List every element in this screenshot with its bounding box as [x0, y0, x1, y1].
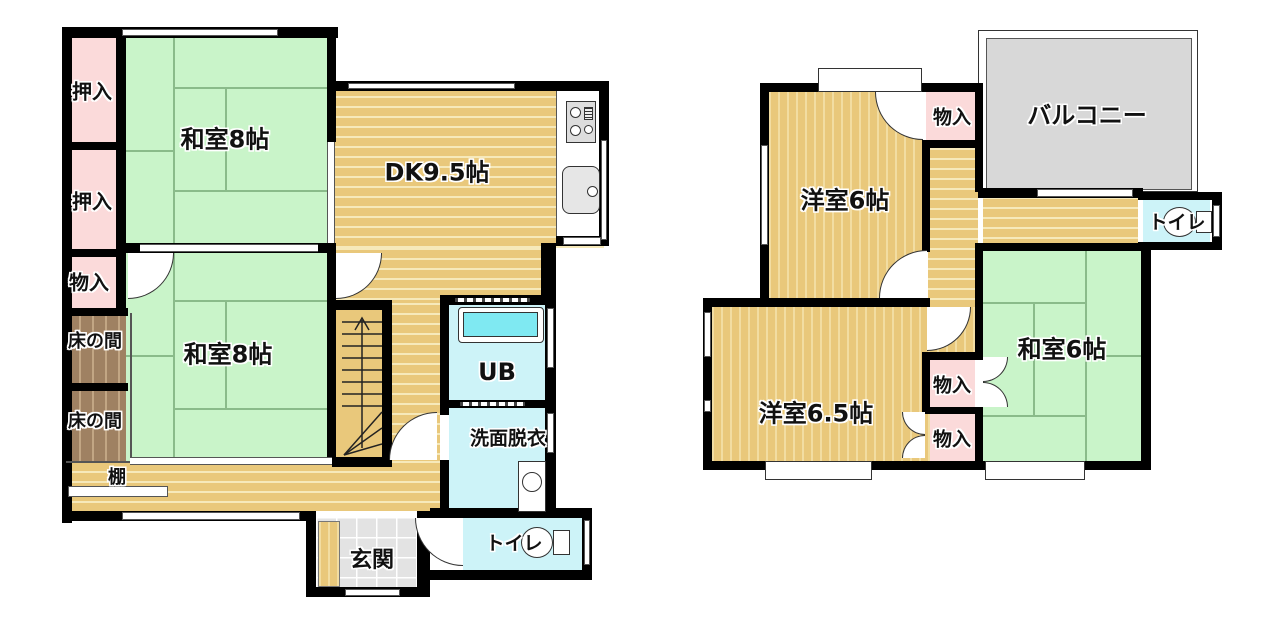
sink-icon	[562, 166, 600, 214]
wall	[116, 27, 126, 313]
stairs-icon	[332, 300, 392, 467]
room-label-monoiri-2f-mid: 物入	[933, 371, 971, 398]
window	[563, 237, 601, 245]
wall	[922, 352, 983, 360]
room-label-yoshitsu65: 洋室6.5帖	[759, 394, 874, 429]
sliding-door	[130, 457, 332, 465]
room-label-toilet-1f: トイレ	[485, 529, 542, 556]
window	[704, 312, 711, 357]
bay-window	[818, 68, 922, 92]
entrance-door-gap	[345, 589, 400, 596]
room-label-senmen: 洗面脱衣	[470, 424, 546, 451]
wall	[703, 298, 930, 307]
window	[547, 308, 554, 368]
wall	[430, 508, 592, 518]
room-label-tokonoma-1: 床の間	[68, 327, 122, 353]
room-label-washitsu6: 和室6帖	[1018, 330, 1107, 365]
room-label-toilet-2f: トイレ	[1148, 208, 1205, 235]
window	[1037, 189, 1133, 197]
floor-plan: 押入 押入 物入 床の間 床の間 棚 和室8帖 和室8帖 DK9.5帖 UB 洗…	[0, 0, 1280, 631]
window	[1213, 205, 1220, 237]
tatami-line	[173, 248, 175, 461]
room-label-tana: 棚	[108, 463, 126, 489]
tatami-line	[173, 408, 332, 410]
room-label-tokonoma-2: 床の間	[68, 407, 122, 433]
bay-window	[985, 461, 1085, 480]
window	[122, 512, 300, 520]
wall	[922, 407, 983, 414]
wall	[922, 352, 930, 414]
wall	[975, 407, 983, 461]
room-label-monoiri-1f: 物入	[69, 267, 109, 296]
wall	[62, 249, 120, 257]
wall	[922, 140, 983, 148]
washing-machine-icon	[518, 461, 546, 512]
room-label-washitsu8-bottom: 和室8帖	[184, 335, 273, 370]
hallway-2f-vertical	[928, 148, 978, 307]
room-label-dk: DK9.5帖	[384, 153, 489, 188]
tatami-line	[173, 33, 175, 248]
sliding-door	[140, 244, 318, 252]
wall	[975, 83, 983, 192]
room-label-balcony: バルコニー	[1027, 96, 1147, 131]
hallway-2f-horizontal	[983, 197, 1138, 243]
room-label-yoshitsu6: 洋室6帖	[801, 181, 890, 216]
wall	[306, 511, 316, 597]
room-label-washitsu8-top: 和室8帖	[181, 120, 270, 155]
tatami-line	[173, 87, 332, 89]
room-label-oshiire-2: 押入	[72, 186, 112, 215]
wall	[418, 570, 592, 580]
bay-window	[765, 461, 872, 480]
room-label-ub: UB	[478, 358, 516, 386]
window	[601, 140, 607, 240]
genkan-step	[318, 521, 340, 587]
tatami-line	[126, 355, 173, 357]
room-label-genkan: 玄関	[350, 542, 394, 574]
wall	[975, 243, 983, 357]
wall	[440, 295, 449, 415]
tatami-line	[173, 190, 332, 192]
room-label-oshiire-1: 押入	[72, 76, 112, 105]
sliding-door	[327, 142, 335, 243]
wall	[62, 142, 120, 150]
wall	[922, 140, 930, 252]
room-label-monoiri-2f-bot: 物入	[933, 425, 971, 452]
wall	[440, 460, 449, 515]
window	[547, 413, 554, 453]
wall	[1141, 243, 1151, 470]
tokonoma-edge	[130, 313, 132, 461]
window	[761, 145, 768, 245]
window	[584, 520, 590, 565]
bath-sliding-door	[455, 298, 530, 302]
room-label-monoiri-2f-top: 物入	[933, 103, 971, 130]
wall	[1138, 242, 1222, 250]
tatami-line	[120, 150, 173, 152]
wall	[1138, 192, 1222, 200]
bathtub-icon	[458, 307, 544, 343]
wall	[983, 243, 1141, 251]
window	[348, 83, 515, 89]
toilet-tank-icon	[553, 530, 570, 555]
wall	[62, 383, 128, 391]
tatami-line	[983, 415, 1085, 417]
window	[122, 29, 278, 36]
senmen-sliding-door	[460, 402, 525, 406]
tatami-line	[173, 300, 332, 302]
stove-icon	[566, 101, 596, 143]
window	[704, 400, 711, 412]
